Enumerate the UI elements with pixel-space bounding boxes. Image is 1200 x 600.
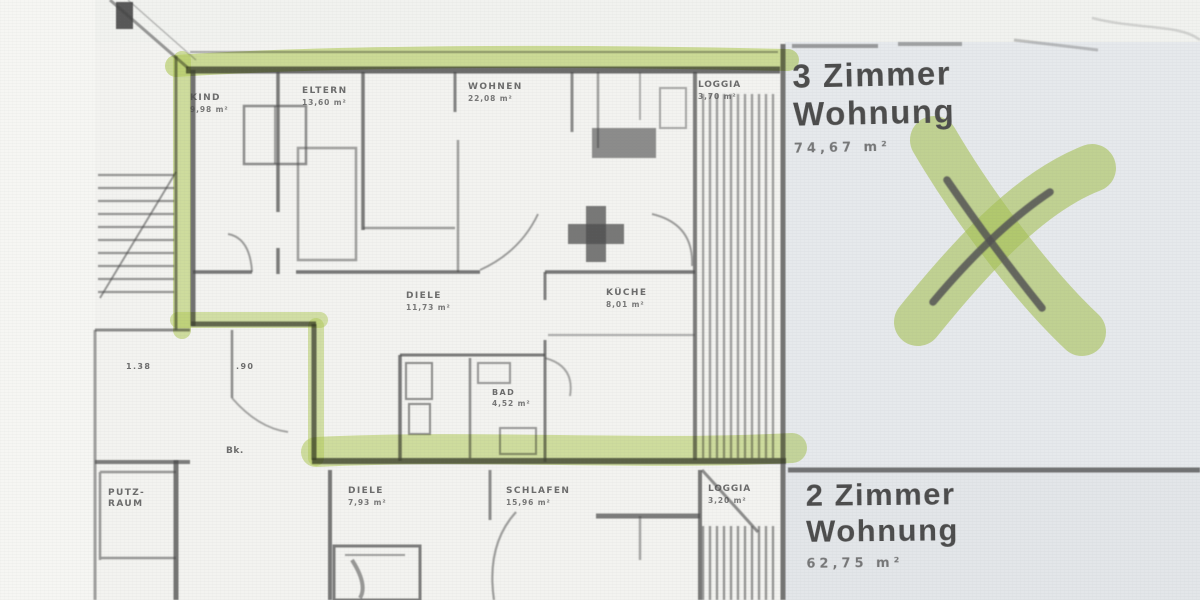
room-label-loggia-lower: LOGGIA 3,20 m²	[708, 484, 751, 505]
room-area: 11,73 m²	[406, 303, 451, 312]
room-name: WOHNEN	[468, 82, 523, 93]
room-area: 3,20 m²	[708, 496, 751, 505]
room-label-wohnen: WOHNEN 22,08 m²	[468, 82, 523, 103]
room-label-kind: KIND 9,98 m²	[190, 93, 229, 114]
room-name: BAD	[492, 388, 531, 398]
room-name: PUTZ-RAUM	[108, 488, 158, 511]
room-label-diele: DIELE 11,73 m²	[406, 291, 451, 312]
room-area: 22,08 m²	[468, 94, 523, 103]
dimension-text: .90	[236, 362, 254, 372]
title-line: 2 Zimmer	[806, 476, 959, 514]
room-area: 13,60 m²	[302, 98, 348, 107]
room-label-schlafen: SCHLAFEN 15,96 m²	[506, 486, 570, 507]
room-area: 4,52 m²	[492, 399, 531, 408]
room-label-putzraum: PUTZ-RAUM	[108, 488, 158, 511]
room-name: DIELE	[348, 486, 387, 497]
title-line: 3 Zimmer	[792, 54, 955, 96]
room-area: 15,96 m²	[506, 498, 570, 507]
room-name: LOGGIA	[708, 484, 751, 495]
room-name: KÜCHE	[606, 288, 647, 299]
scanned-floorplan-page: KIND 9,98 m² ELTERN 13,60 m² WOHNEN 22,0…	[0, 0, 1200, 600]
room-area: 7,93 m²	[348, 498, 387, 507]
room-name: DIELE	[406, 291, 451, 302]
room-label-loggia-top: LOGGIA 3,70 m²	[698, 80, 741, 101]
room-label-diele-lower: DIELE 7,93 m²	[348, 486, 387, 507]
room-name: KIND	[190, 93, 229, 104]
dimension-text: 1.38	[126, 362, 151, 372]
room-name: LOGGIA	[698, 80, 741, 91]
apartment-title-2-zimmer: 2 Zimmer Wohnung 62,75 m²	[806, 476, 960, 572]
room-area: 9,98 m²	[190, 105, 229, 114]
annotation-bk: Bk.	[226, 446, 244, 457]
room-label-kueche: KÜCHE 8,01 m²	[606, 288, 647, 309]
title-line: Wohnung	[793, 93, 956, 135]
floorplan-drawing	[0, 0, 1200, 600]
room-label-bad: BAD 4,52 m²	[492, 388, 531, 408]
room-name: ELTERN	[302, 86, 348, 97]
apartment-area: 62,75 m²	[806, 555, 959, 572]
title-line: Wohnung	[806, 512, 959, 550]
apartment-title-3-zimmer: 3 Zimmer Wohnung 74,67 m²	[792, 54, 956, 156]
room-label-eltern: ELTERN 13,60 m²	[302, 86, 348, 107]
room-area: 8,01 m²	[606, 300, 647, 309]
room-name: SCHLAFEN	[506, 486, 570, 497]
room-area: 3,70 m²	[698, 92, 741, 101]
